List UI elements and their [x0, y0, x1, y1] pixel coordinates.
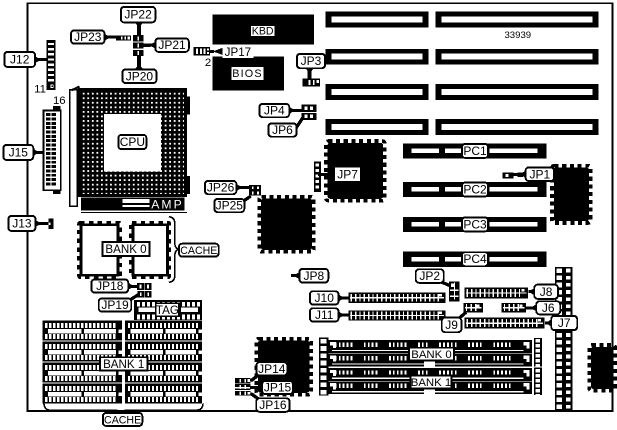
svg-text:AMP: AMP	[151, 197, 183, 211]
svg-text:J6: J6	[542, 301, 555, 315]
svg-text:J9: J9	[445, 318, 458, 332]
svg-text:PC3: PC3	[463, 217, 487, 231]
svg-text:JP6: JP6	[272, 123, 293, 137]
svg-text:16: 16	[53, 95, 66, 107]
svg-text:JP15: JP15	[264, 381, 292, 395]
svg-text:JP26: JP26	[207, 181, 235, 195]
svg-text:JP14: JP14	[258, 362, 286, 376]
svg-text:BANK 0: BANK 0	[411, 349, 452, 361]
svg-text:CACHE: CACHE	[180, 245, 217, 257]
svg-text:JP2: JP2	[419, 269, 440, 283]
svg-text:BANK 1: BANK 1	[103, 358, 144, 371]
svg-text:BIOS: BIOS	[232, 68, 263, 80]
svg-text:J13: J13	[12, 217, 32, 231]
svg-text:11: 11	[34, 84, 46, 96]
svg-text:CACHE: CACHE	[104, 415, 141, 427]
svg-text:BANK 1: BANK 1	[411, 377, 452, 389]
svg-text:J8: J8	[540, 285, 553, 299]
svg-text:JP7: JP7	[337, 168, 358, 182]
svg-text:J11: J11	[315, 308, 334, 322]
svg-text:JP22: JP22	[124, 8, 152, 22]
svg-text:J7: J7	[558, 316, 571, 330]
svg-text:J12: J12	[10, 53, 30, 67]
svg-text:TAG: TAG	[156, 304, 179, 317]
svg-text:CPU: CPU	[120, 135, 145, 149]
svg-text:JP8: JP8	[303, 269, 324, 283]
svg-text:BANK 0: BANK 0	[105, 243, 146, 256]
svg-text:33939: 33939	[504, 30, 531, 41]
svg-text:JP23: JP23	[74, 30, 102, 44]
svg-text:J15: J15	[9, 146, 29, 160]
svg-text:JP3: JP3	[301, 54, 322, 68]
svg-text:PC4: PC4	[463, 252, 487, 266]
svg-text:JP16: JP16	[259, 398, 287, 412]
svg-text:JP20: JP20	[126, 69, 154, 83]
svg-text:JP25: JP25	[216, 199, 244, 213]
svg-text:JP18: JP18	[96, 279, 124, 293]
svg-text:JP21: JP21	[158, 38, 186, 52]
svg-text:PC2: PC2	[463, 183, 487, 197]
svg-text:2: 2	[205, 57, 211, 69]
svg-text:JP4: JP4	[264, 104, 285, 118]
svg-text:JP17: JP17	[225, 46, 251, 59]
svg-text:PC1: PC1	[463, 144, 487, 158]
svg-text:KBD: KBD	[252, 25, 274, 37]
svg-text:J10: J10	[315, 291, 335, 305]
svg-text:JP19: JP19	[101, 298, 129, 312]
svg-text:JP1: JP1	[530, 167, 551, 181]
